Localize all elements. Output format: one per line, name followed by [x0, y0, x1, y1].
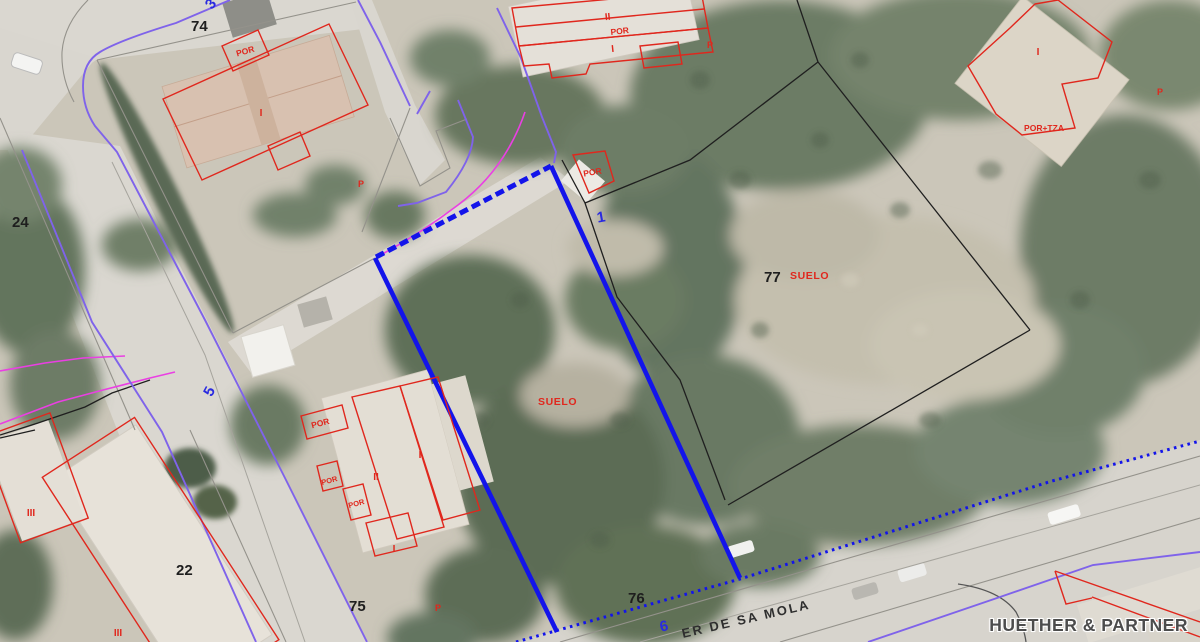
parcel-number-75: 75 — [349, 598, 366, 615]
cadastral-map-canvas[interactable]: 74 24 22 75 76 77 3 5 1 6 SUELO SUELO ER… — [0, 0, 1200, 642]
building-label-floors-74: I — [260, 108, 263, 119]
parcel-number-22: 22 — [176, 562, 193, 579]
parcel-number-76: 76 — [628, 590, 645, 607]
pool-mark-4: P — [435, 603, 441, 613]
suelo-label-parcel-77: SUELO — [790, 270, 829, 282]
building-label-floors3-a: III — [27, 508, 36, 519]
pool-mark-2: P — [707, 40, 713, 50]
building-label-floors1-s-south: I — [393, 544, 396, 555]
watermark: HUETHER & PARTNER — [989, 615, 1188, 636]
pool-mark-1: P — [358, 179, 364, 189]
pool-mark-3: P — [1157, 87, 1163, 97]
building-label-por-topcenter: POR — [610, 25, 629, 37]
parcel-number-77: 77 — [764, 269, 781, 286]
suelo-label-subject-parcel: SUELO — [538, 396, 577, 408]
parcel-number-74: 74 — [191, 18, 208, 35]
parcel-number-24: 24 — [12, 214, 29, 231]
building-label-floors2-south: II — [373, 472, 379, 483]
building-label-floors3-b: III — [114, 628, 123, 639]
building-label-floors-topright: I — [1037, 47, 1040, 58]
building-label-portza-topright: POR+TZA — [1024, 123, 1064, 133]
building-label-floors1-east-south: I — [419, 450, 422, 461]
